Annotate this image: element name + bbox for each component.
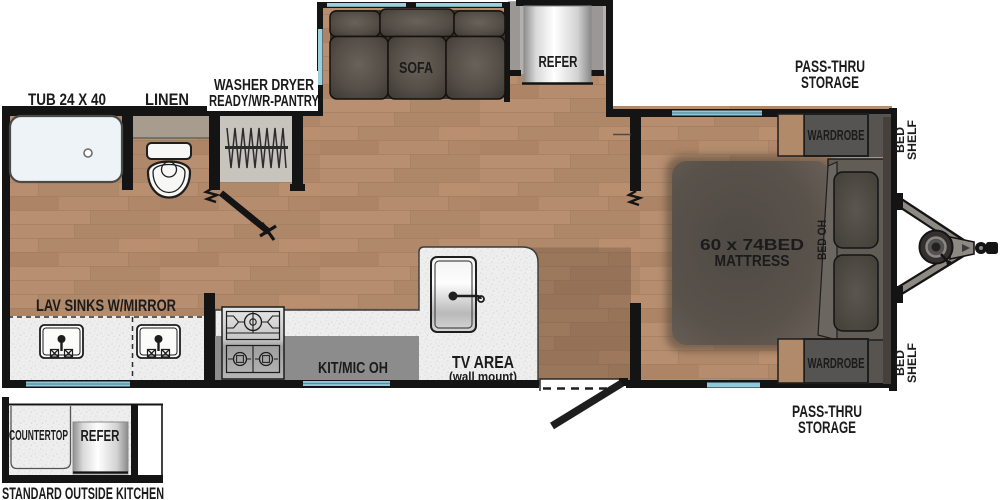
svg-text:WARDROBE: WARDROBE — [808, 355, 865, 372]
svg-text:BED: BED — [895, 350, 907, 376]
svg-text:READY/WR-PANTRY: READY/WR-PANTRY — [209, 93, 319, 110]
svg-text:BED: BED — [895, 127, 907, 153]
svg-text:LAV SINKS W/MIRROR: LAV SINKS W/MIRROR — [36, 297, 176, 315]
svg-text:REFER: REFER — [539, 54, 578, 71]
svg-text:MATTRESS: MATTRESS — [715, 253, 790, 270]
svg-text:TV AREA: TV AREA — [452, 352, 514, 372]
svg-text:STORAGE: STORAGE — [801, 74, 859, 92]
svg-text:SHELF: SHELF — [907, 120, 919, 160]
svg-text:KIT/MIC OH: KIT/MIC OH — [318, 360, 388, 377]
svg-text:STANDARD OUTSIDE KITCHEN: STANDARD OUTSIDE KITCHEN — [2, 484, 164, 500]
svg-text:WASHER DRYER: WASHER DRYER — [214, 77, 314, 94]
svg-text:STORAGE: STORAGE — [798, 419, 856, 437]
svg-text:BED OH: BED OH — [815, 220, 829, 260]
svg-text:SHELF: SHELF — [907, 343, 919, 383]
svg-text:SOFA: SOFA — [399, 60, 433, 77]
svg-text:TUB 24 X 40: TUB 24 X 40 — [28, 91, 106, 109]
svg-text:(wall mount): (wall mount) — [449, 370, 517, 384]
svg-text:COUNTERTOP: COUNTERTOP — [9, 427, 68, 444]
svg-text:LINEN: LINEN — [145, 91, 189, 109]
svg-text:60 x 74BED: 60 x 74BED — [700, 237, 804, 254]
svg-text:WARDROBE: WARDROBE — [808, 127, 865, 144]
svg-text:REFER: REFER — [81, 428, 120, 445]
